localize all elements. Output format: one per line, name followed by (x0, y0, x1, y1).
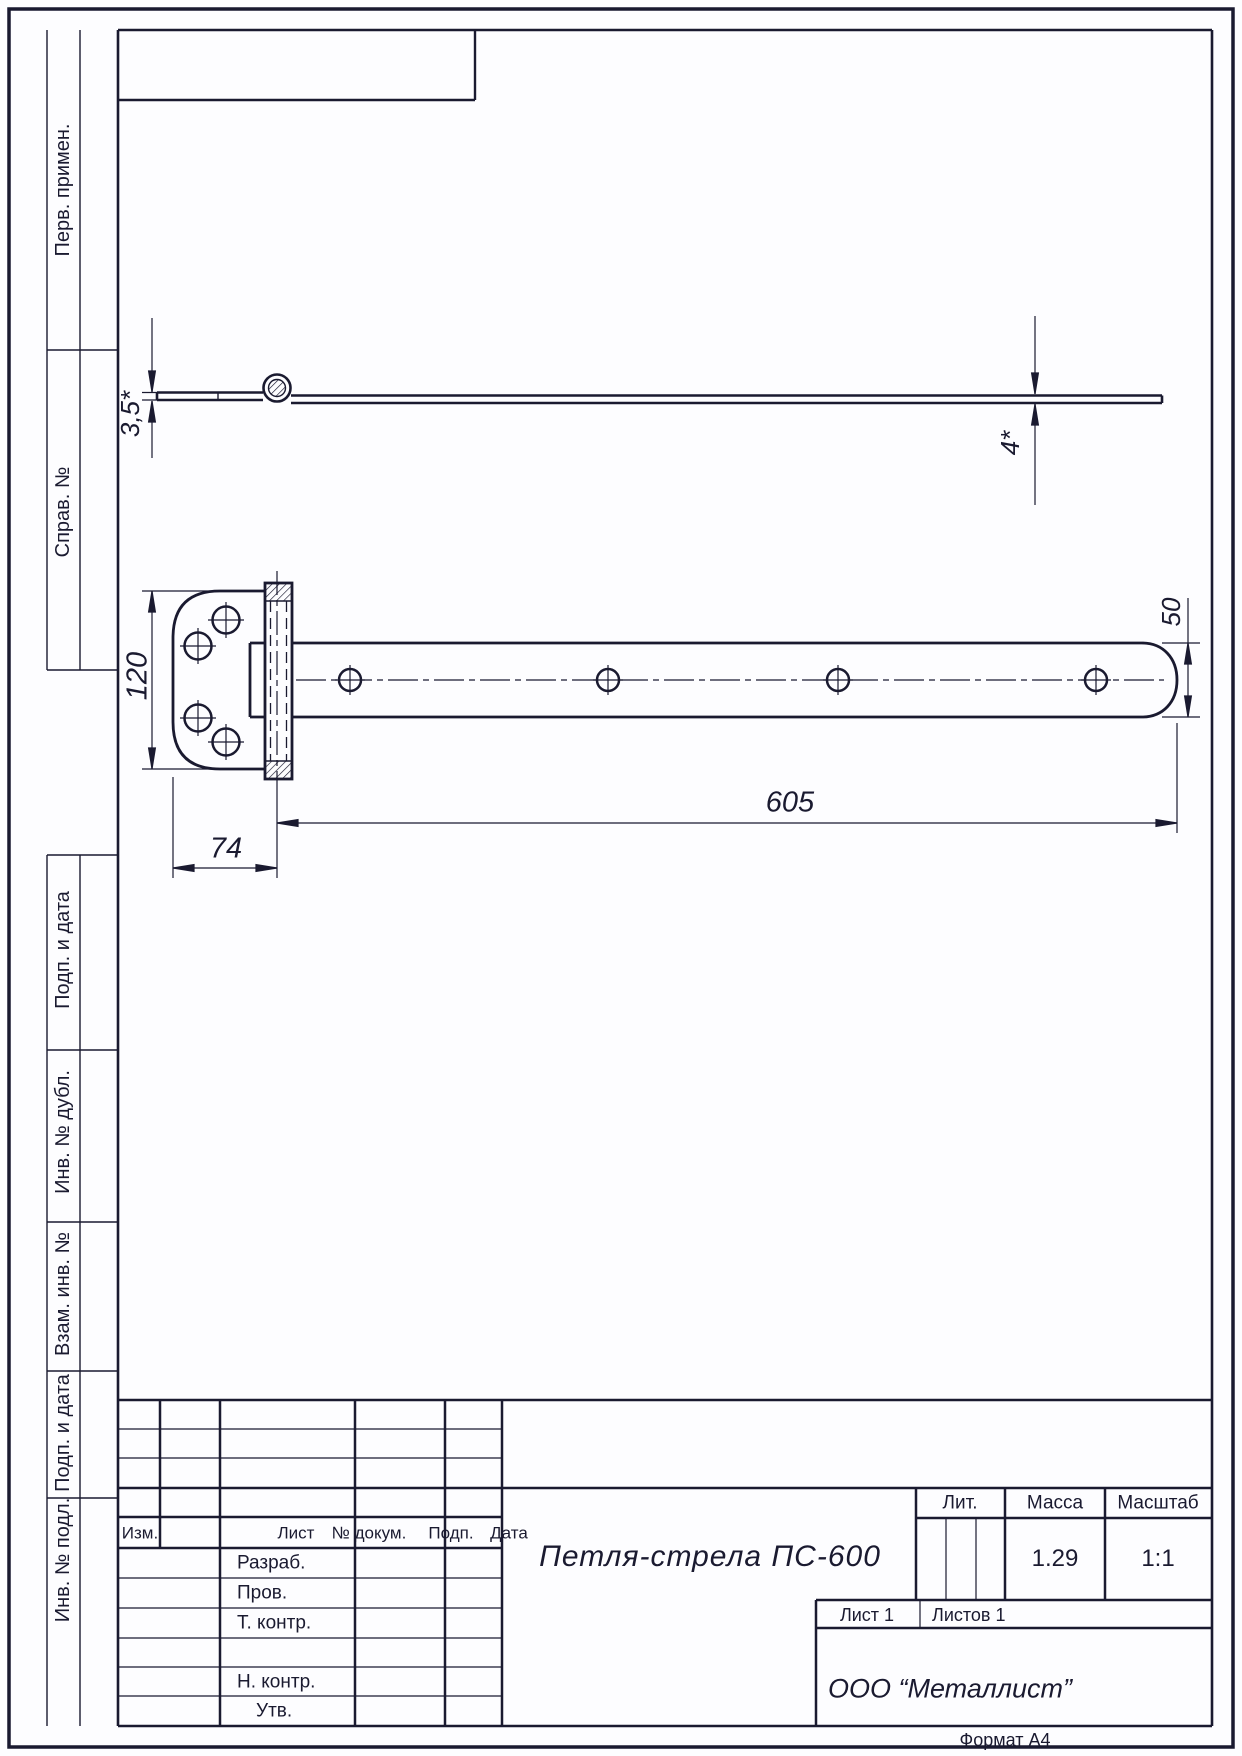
margin-label-podp-i-data-2: Подп. и дата (53, 1374, 73, 1492)
tb-scale-value: 1:1 (1141, 1547, 1174, 1571)
tb-sheets: Листов 1 (932, 1606, 1006, 1624)
margin-label-inv-no-dubl: Инв. № дубл. (53, 1070, 73, 1194)
tb-header-data: Дата (490, 1525, 528, 1542)
tb-role-razrab: Разраб. (237, 1554, 305, 1573)
margin-label-sprav-no: Справ. № (53, 467, 73, 558)
dim-text-strap-end-width: 50 (1158, 598, 1184, 627)
tb-role-t-kontr: Т. контр. (237, 1614, 311, 1633)
tb-header-izm: Изм. (122, 1525, 158, 1542)
dim-strap-length (277, 723, 1177, 833)
tb-mass-value: 1.29 (1032, 1547, 1079, 1571)
tb-header-list: Лист (278, 1525, 315, 1542)
margin-label-perv-primen: Перв. примен. (53, 124, 73, 257)
dim-text-plate-width: 74 (210, 835, 242, 864)
dim-text-strap-length: 605 (766, 789, 814, 818)
tb-header-no-dokum: № докум. (332, 1525, 407, 1542)
margin-label-inv-no-podl: Инв. № подл. (53, 1498, 73, 1623)
part-title: Петля-стрела ПС-600 (539, 1542, 881, 1572)
tb-organization: ООО “Металлист” (828, 1676, 1072, 1703)
dim-text-strap-thickness: 4* (997, 431, 1023, 456)
margin-label-vzam-inv-no: Взам. инв. № (53, 1232, 73, 1356)
drawing-sheet: Перв. примен. Справ. № Подп. и дата Инв.… (0, 0, 1242, 1756)
tb-sheet: Лист 1 (840, 1606, 894, 1624)
dim-text-plate-thickness: 3,5* (117, 391, 143, 437)
tb-role-n-kontr: Н. контр. (237, 1673, 315, 1692)
side-view (157, 375, 1162, 404)
margin-label-podp-i-data-1: Подп. и дата (53, 891, 73, 1009)
dim-text-plate-height: 120 (124, 652, 153, 700)
sheet-frame (9, 9, 1233, 1747)
tb-role-utv: Утв. (256, 1702, 292, 1721)
tb-header-podp: Подп. (428, 1525, 473, 1542)
format-note: Формат А4 (960, 1731, 1051, 1749)
plate-holes (180, 602, 244, 760)
hinge-barrel (265, 583, 292, 779)
tb-role-prov: Пров. (237, 1584, 287, 1603)
tb-mass-label: Масса (1027, 1494, 1083, 1513)
tb-scale-label: Масштаб (1117, 1494, 1198, 1513)
tb-lit-label: Лит. (943, 1494, 978, 1513)
dim-strap-thickness (1032, 316, 1039, 505)
front-view (173, 571, 1177, 791)
